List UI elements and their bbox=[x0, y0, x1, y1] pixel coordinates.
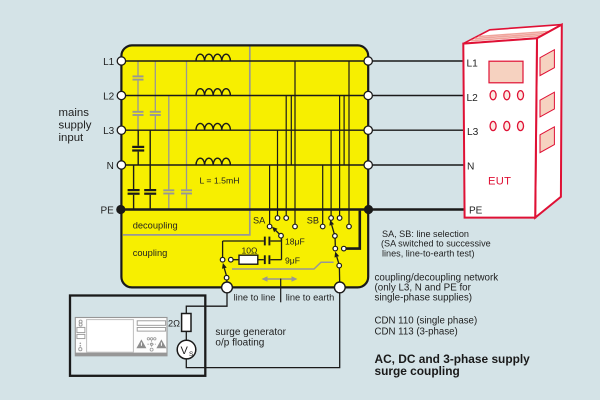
svg-text:L1: L1 bbox=[467, 59, 479, 70]
svg-text:V: V bbox=[181, 345, 189, 357]
svg-text:N: N bbox=[107, 161, 114, 172]
svg-text:CDN 113 (3-phase): CDN 113 (3-phase) bbox=[375, 327, 458, 338]
svg-text:coupling: coupling bbox=[133, 248, 168, 258]
svg-text:L1: L1 bbox=[103, 57, 115, 68]
svg-text:L = 1.5mH: L = 1.5mH bbox=[200, 175, 240, 185]
svg-text:18μF: 18μF bbox=[285, 237, 305, 247]
svg-text:single-phase supplies): single-phase supplies) bbox=[375, 293, 472, 304]
svg-text:S: S bbox=[189, 351, 194, 358]
svg-text:9μF: 9μF bbox=[285, 255, 300, 265]
svg-text:L2: L2 bbox=[103, 91, 115, 102]
svg-text:surge coupling: surge coupling bbox=[375, 364, 460, 378]
svg-text:SB: SB bbox=[307, 216, 319, 226]
svg-text:input: input bbox=[59, 132, 85, 144]
svg-text:SA: SA bbox=[253, 216, 266, 226]
svg-text:N: N bbox=[467, 162, 474, 173]
svg-text:L3: L3 bbox=[103, 126, 115, 137]
svg-text:lines, line-to-earth test): lines, line-to-earth test) bbox=[382, 248, 475, 258]
svg-text:L3: L3 bbox=[467, 127, 479, 138]
svg-text:CDN 110 (single phase): CDN 110 (single phase) bbox=[375, 316, 478, 327]
svg-text:line to line: line to line bbox=[234, 293, 276, 303]
svg-text:SA, SB: line selection: SA, SB: line selection bbox=[382, 229, 469, 239]
svg-text:supply: supply bbox=[59, 120, 92, 132]
svg-text:EUT: EUT bbox=[488, 176, 511, 188]
svg-text:o/p floating: o/p floating bbox=[215, 337, 264, 348]
svg-text:(SA switched to successive: (SA switched to successive bbox=[381, 239, 491, 249]
svg-text:10Ω: 10Ω bbox=[242, 246, 259, 256]
svg-text:line to earth: line to earth bbox=[286, 293, 335, 303]
svg-text:PE: PE bbox=[100, 205, 114, 216]
svg-text:L2: L2 bbox=[467, 93, 479, 104]
svg-text:PE: PE bbox=[469, 206, 483, 217]
svg-text:decoupling: decoupling bbox=[133, 221, 178, 231]
svg-text:2Ω: 2Ω bbox=[168, 318, 180, 328]
svg-text:mains: mains bbox=[59, 107, 90, 119]
